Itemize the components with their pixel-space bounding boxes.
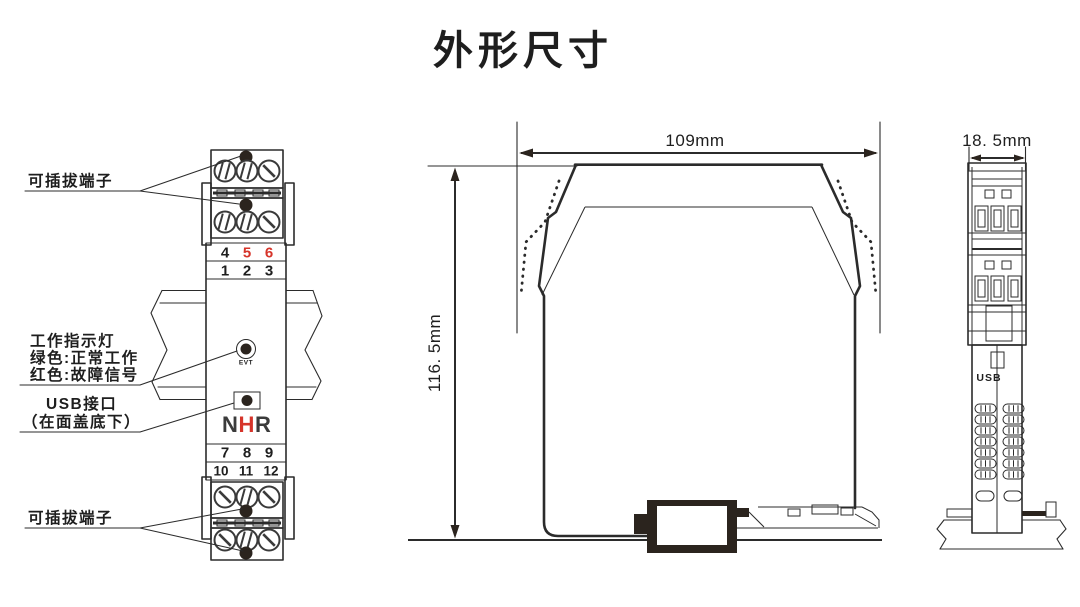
indicator-label: EVT (239, 360, 253, 367)
logo-letter-r: R (255, 412, 271, 437)
usb-port (234, 392, 260, 409)
logo-letter-h: H (239, 412, 255, 437)
terminal-number-11: 11 (239, 464, 254, 479)
release-latch (737, 505, 879, 528)
terminal-number-12: 12 (263, 464, 278, 479)
end-lower-body: USB (972, 345, 1024, 533)
logo-letter-n: N (222, 412, 238, 437)
screw-terminal-icon (237, 487, 258, 508)
terminal-numbers-top: 4 5 6 1 2 3 (221, 245, 273, 280)
nhr-logo: N H R (222, 412, 271, 437)
end-width-dimension: 18. 5mm (962, 131, 1032, 170)
device-profile (521, 165, 876, 536)
terminal-slot (975, 276, 988, 301)
label-indicator-line3: 红色:故障信号 (30, 365, 139, 384)
usb-dot-icon (242, 395, 253, 406)
indicator-led-icon (241, 344, 252, 355)
height-dimension: 116. 5mm (425, 168, 460, 539)
inner-profile (542, 207, 854, 295)
terminal-number-7: 7 (221, 445, 229, 462)
leader-line (140, 351, 237, 385)
terminal-dot (240, 547, 253, 560)
dotted-claw-right (838, 181, 876, 295)
label-indicator-line1: 工作指示灯 (30, 331, 115, 350)
usb-label: USB (976, 372, 1001, 384)
label-indicator-line2: 绿色:正常工作 (30, 348, 139, 367)
terminal-dot (240, 505, 253, 518)
end-latch-block (986, 306, 1012, 341)
rail-tab-left (947, 509, 972, 517)
terminal-number-3: 3 (265, 263, 273, 280)
label-pluggable-terminal-top: 可插拔端子 (28, 171, 113, 190)
latch-hook (1046, 502, 1056, 517)
vent-grid (975, 404, 1024, 479)
terminal-number-6: 6 (265, 245, 273, 262)
rail-break-left (151, 291, 167, 400)
terminal-slot (975, 206, 988, 231)
rail-latch-right (1022, 511, 1046, 516)
terminal-slot (991, 276, 1004, 301)
side-view: 109mm 116. 5mm (408, 122, 882, 553)
rail-break-left (937, 520, 946, 549)
arrowhead-left-icon (970, 155, 981, 162)
screw-terminal-icon (259, 487, 280, 508)
dim-height-label: 116. 5mm (425, 314, 444, 392)
terminal-slot (991, 206, 1004, 231)
terminal-number-4: 4 (221, 245, 230, 262)
rail-break-right (305, 291, 322, 400)
drawing-page: 外形尺寸 (0, 0, 1080, 607)
terminal-slot (1008, 206, 1021, 231)
end-terminal-housing (968, 163, 1026, 345)
terminal-bracket-left (202, 477, 211, 539)
terminal-number-9: 9 (265, 445, 273, 462)
terminal-slot (1008, 276, 1021, 301)
terminal-number-8: 8 (243, 445, 251, 462)
arrowhead-left-icon (519, 149, 533, 158)
screw-terminal-icon (259, 530, 280, 551)
dimension-drawing: 外形尺寸 (0, 0, 1080, 607)
evt-indicator: EVT (237, 340, 256, 367)
screw-terminal-icon (237, 161, 258, 182)
rail-break-right (1057, 520, 1066, 549)
end-din-rail (937, 502, 1066, 549)
terminal-number-5: 5 (243, 245, 251, 262)
rail-clip (634, 500, 737, 553)
annotations: 可插拔端子 工作指示灯 绿色:正常工作 红色:故障信号 USB接口 （在面盖底下… (20, 156, 243, 551)
din-rail (151, 291, 322, 400)
arrowhead-right-icon (864, 149, 878, 158)
leader-line (140, 403, 234, 432)
page-title: 外形尺寸 (433, 29, 613, 73)
terminal-bracket-left (202, 183, 211, 245)
dim-end-width-label: 18. 5mm (962, 131, 1032, 150)
screw-terminal-icon (259, 161, 280, 182)
arrowhead-up-icon (451, 168, 460, 182)
label-usb-line1: USB接口 (46, 394, 117, 413)
label-usb-line2: （在面盖底下） (22, 412, 141, 431)
width-dimension: 109mm (519, 131, 878, 158)
terminal-number-10: 10 (213, 464, 228, 479)
end-view: 18. 5mm (937, 131, 1066, 549)
terminal-number-1: 1 (221, 263, 229, 280)
oval-slot (976, 491, 994, 501)
terminal-dot (240, 199, 253, 212)
screw-terminal-icon (259, 212, 280, 233)
terminal-bracket-right (285, 183, 294, 245)
arrowhead-right-icon (1014, 155, 1025, 162)
screw-terminal-icon (215, 487, 236, 508)
screw-terminal-icon (237, 212, 258, 233)
arrowhead-down-icon (451, 525, 460, 539)
screw-terminal-icon (215, 212, 236, 233)
terminal-bracket-right (285, 477, 294, 539)
dim-width-label: 109mm (665, 131, 724, 150)
oval-slot (1004, 491, 1022, 501)
terminal-block-bottom (202, 477, 294, 560)
front-view: 4 5 6 1 2 3 EVT N H R 7 8 9 10 (20, 150, 322, 560)
terminal-number-2: 2 (243, 263, 251, 280)
label-pluggable-terminal-bottom: 可插拔端子 (28, 508, 113, 527)
